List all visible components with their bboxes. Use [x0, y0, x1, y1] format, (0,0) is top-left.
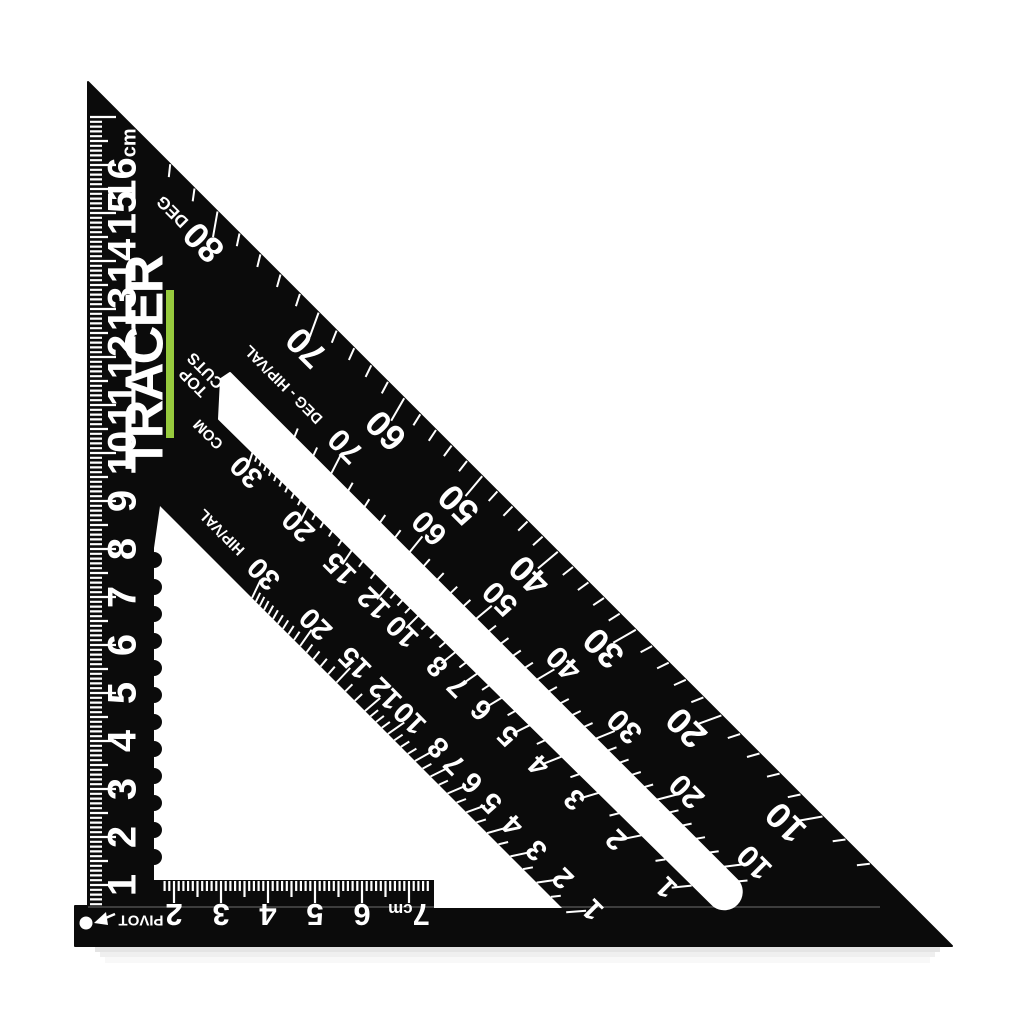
left-ruler-number: 1: [100, 874, 144, 896]
left-ruler-number: 9: [100, 490, 144, 512]
bottom-shadow: [95, 947, 940, 952]
left-ruler-number: 7: [100, 586, 144, 608]
tracer-logo: TRACER: [114, 256, 174, 470]
bottom-ruler-number: 3: [212, 897, 229, 932]
product-photo: 12345678910111213141516cm234567cm7060504…: [0, 0, 1024, 1024]
speed-square: 12345678910111213141516cm234567cm7060504…: [0, 0, 1024, 1024]
left-ruler-number: 6: [100, 634, 144, 656]
left-ruler-number: 4: [100, 729, 144, 752]
left-ruler-number: 8: [100, 538, 144, 560]
bottom-ruler-number: 2: [165, 897, 182, 932]
bottom-ruler-number: 5: [306, 897, 323, 932]
logo-underline: [166, 290, 174, 438]
left-ruler-number: 2: [100, 826, 144, 848]
bottom-ruler-number: 4: [259, 897, 277, 932]
bottom-shadow: [105, 957, 930, 963]
bottom-shadow: [100, 952, 935, 957]
left-ruler-number: 3: [100, 778, 144, 800]
pivot-notch: [80, 917, 93, 930]
left-ruler-number: 5: [100, 682, 144, 704]
bottom-ruler-number: 6: [353, 897, 370, 932]
pivot-label: PIVOT: [118, 912, 163, 929]
